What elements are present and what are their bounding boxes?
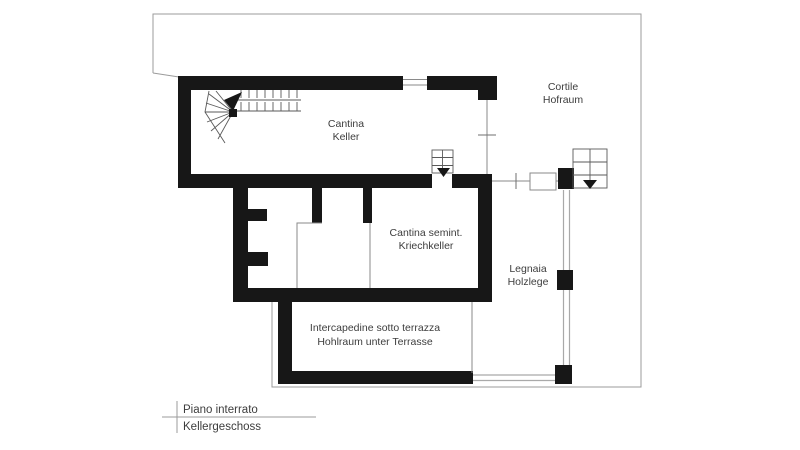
- room-label-cortile-it: Cortile: [548, 81, 579, 93]
- room-label-cantina-de: Keller: [333, 131, 360, 143]
- wall-stub-lower: [248, 252, 268, 266]
- stair-direction-arrow-up-icon: [224, 92, 242, 111]
- room-label-cortile-de: Hofraum: [543, 94, 584, 106]
- pillar-middle: [557, 270, 573, 290]
- wall-cantina-bottom-left: [178, 174, 432, 188]
- floor-plan-svg: Cantina Keller Cortile Hofraum Cantina s…: [0, 0, 800, 450]
- room-label-cortile: Cortile Hofraum: [543, 81, 584, 106]
- wall-semint-right: [478, 174, 492, 302]
- room-label-legnaia: Legnaia Holzlege: [508, 263, 549, 288]
- room-labels: Cantina Keller Cortile Hofraum Cantina s…: [310, 81, 583, 348]
- wall-cantina-top-left: [178, 76, 403, 188]
- floor-plan-page: Cantina Keller Cortile Hofraum Cantina s…: [0, 0, 800, 450]
- room-label-legnaia-it: Legnaia: [509, 263, 547, 275]
- room-label-intercapedine-de: Hohlraum unter Terrasse: [317, 336, 433, 348]
- title-block: Piano interrato Kellergeschoss: [162, 401, 316, 433]
- pillar-top: [558, 168, 574, 189]
- room-label-cantina: Cantina Keller: [328, 118, 364, 143]
- title-line-it: Piano interrato: [183, 404, 258, 416]
- exterior-stair: [573, 149, 607, 189]
- wall-stub-upper: [248, 209, 267, 221]
- wall-partition-2: [363, 188, 372, 223]
- wall-semint-bottom: [233, 288, 492, 302]
- boundary-left-join: [153, 73, 179, 77]
- room-label-cantina-semint: Cantina semint. Kriechkeller: [390, 227, 463, 252]
- room-label-intercapedine-it: Intercapedine sotto terrazza: [310, 322, 440, 334]
- room-label-cantina-it: Cantina: [328, 118, 364, 130]
- stair-direction-arrow-down-icon: [437, 168, 450, 177]
- room-label-legnaia-de: Holzlege: [508, 276, 549, 288]
- partition-1-thin-step: [297, 223, 322, 288]
- wall-cantina-bottom-right: [452, 174, 478, 188]
- wall-cantina-top-right: [427, 76, 497, 100]
- entry-landing: [530, 173, 556, 190]
- stair-newel-post: [229, 109, 237, 117]
- room-label-cantina-semint-de: Kriechkeller: [399, 240, 454, 252]
- interior-thin-lines: [297, 223, 370, 288]
- interior-stair: [432, 150, 453, 177]
- window-top-wall: [403, 80, 427, 86]
- wall-partition-1: [312, 188, 322, 223]
- title-line-de: Kellergeschoss: [183, 421, 261, 433]
- room-label-cantina-semint-it: Cantina semint.: [390, 227, 463, 239]
- winder-stair: [205, 90, 301, 143]
- pillar-bottom: [555, 365, 572, 384]
- room-label-intercapedine: Intercapedine sotto terrazza Hohlraum un…: [310, 322, 440, 348]
- wall-semint-left: [233, 174, 248, 302]
